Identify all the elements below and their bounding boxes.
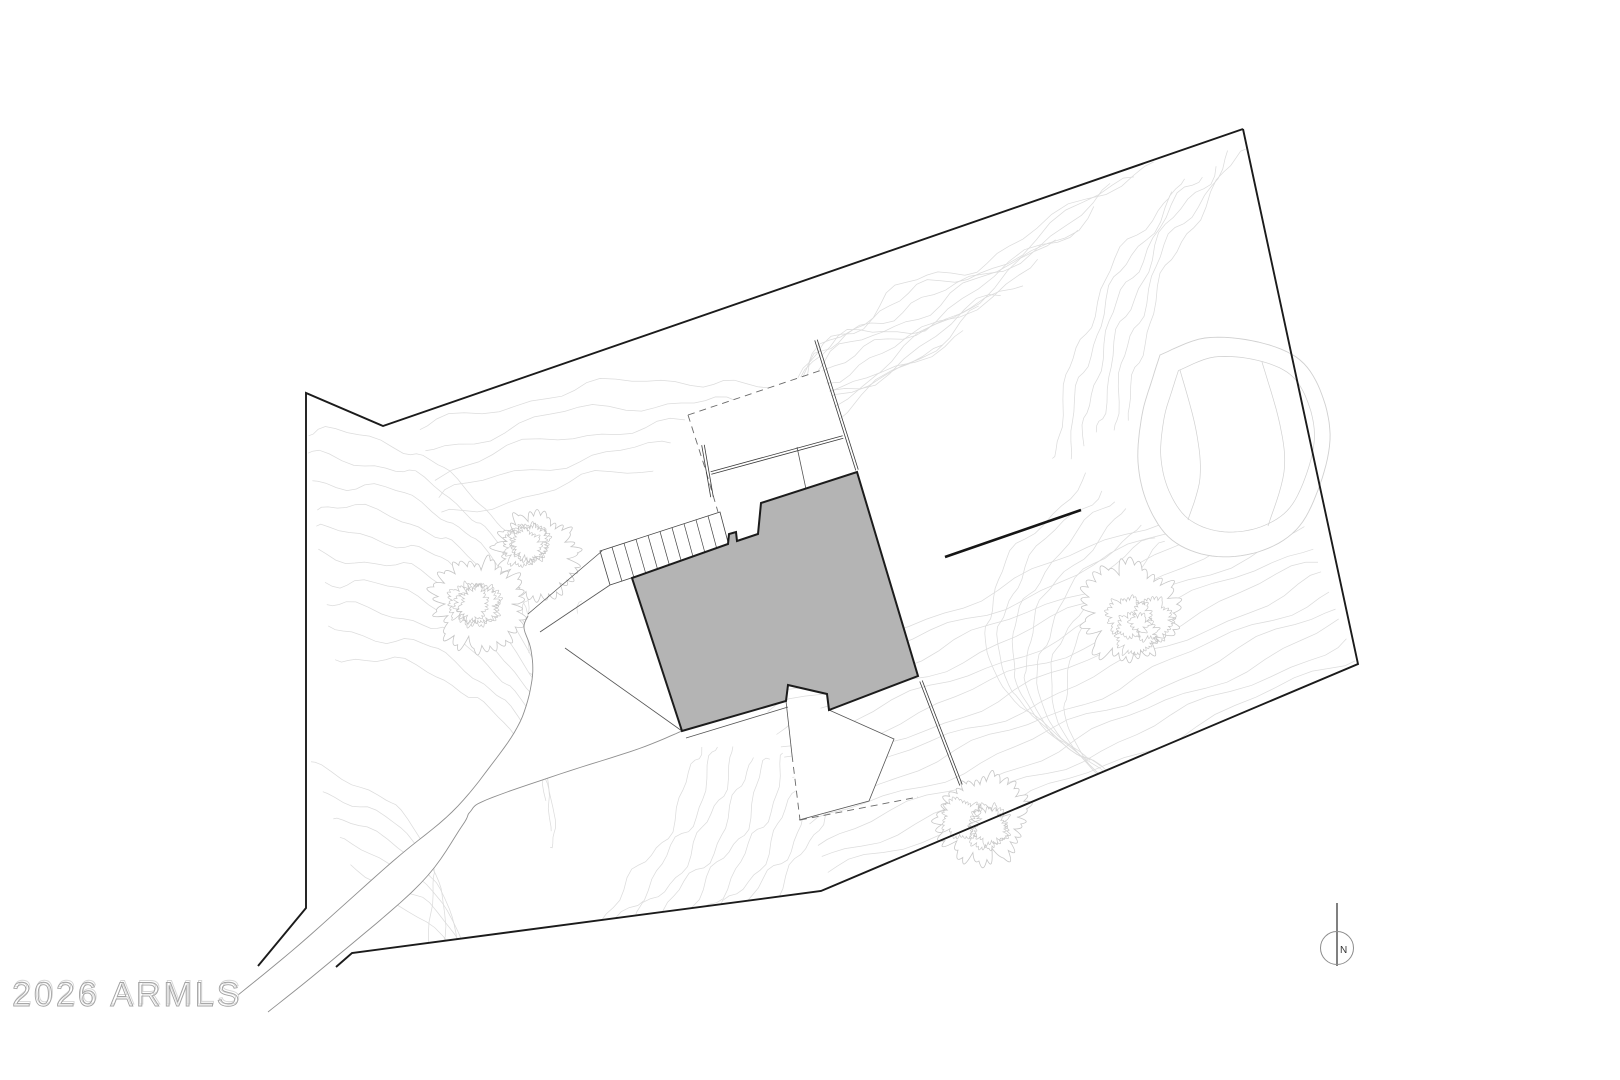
watermark-text: 2026 ARMLS [12, 976, 242, 1014]
tree [932, 770, 1033, 867]
site-wall [945, 510, 1081, 557]
north-arrow: N [1321, 903, 1354, 966]
north-label: N [1340, 945, 1347, 956]
site-plan-page: N 2026 ARMLS 2026 ARMLS [0, 0, 1620, 1080]
terrace-white-areas [238, 370, 894, 1012]
site-plan-drawing: N 2026 ARMLS 2026 ARMLS [0, 0, 1620, 1080]
rock-outcrop [1138, 337, 1330, 557]
watermark: 2026 ARMLS 2026 ARMLS [12, 974, 243, 1014]
tree [1080, 557, 1182, 663]
